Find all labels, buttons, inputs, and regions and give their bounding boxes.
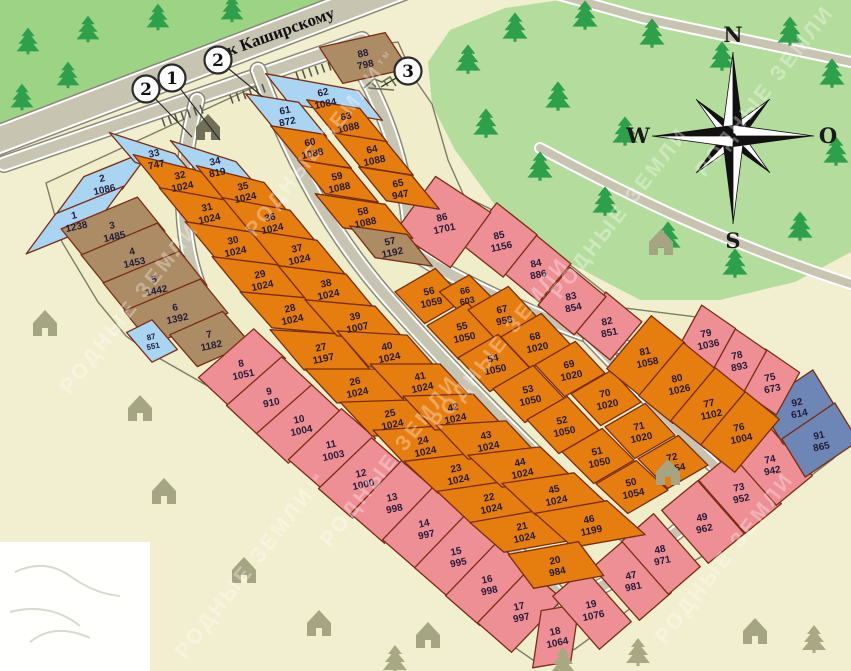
- marker-number: 2: [212, 51, 224, 71]
- compass-e: O: [819, 123, 837, 148]
- marker-number: 1: [166, 69, 178, 89]
- white-inset-box: [0, 542, 150, 671]
- compass-s: S: [725, 228, 740, 253]
- compass-w: W: [625, 123, 650, 148]
- marker-number: 2: [140, 80, 152, 100]
- map-canvas: 2108611238314854145351442613927118287551…: [0, 0, 851, 671]
- marker-number: 3: [402, 62, 414, 82]
- compass-n: N: [723, 22, 742, 47]
- land-plot-map: 2108611238314854145351442613927118287551…: [0, 0, 851, 671]
